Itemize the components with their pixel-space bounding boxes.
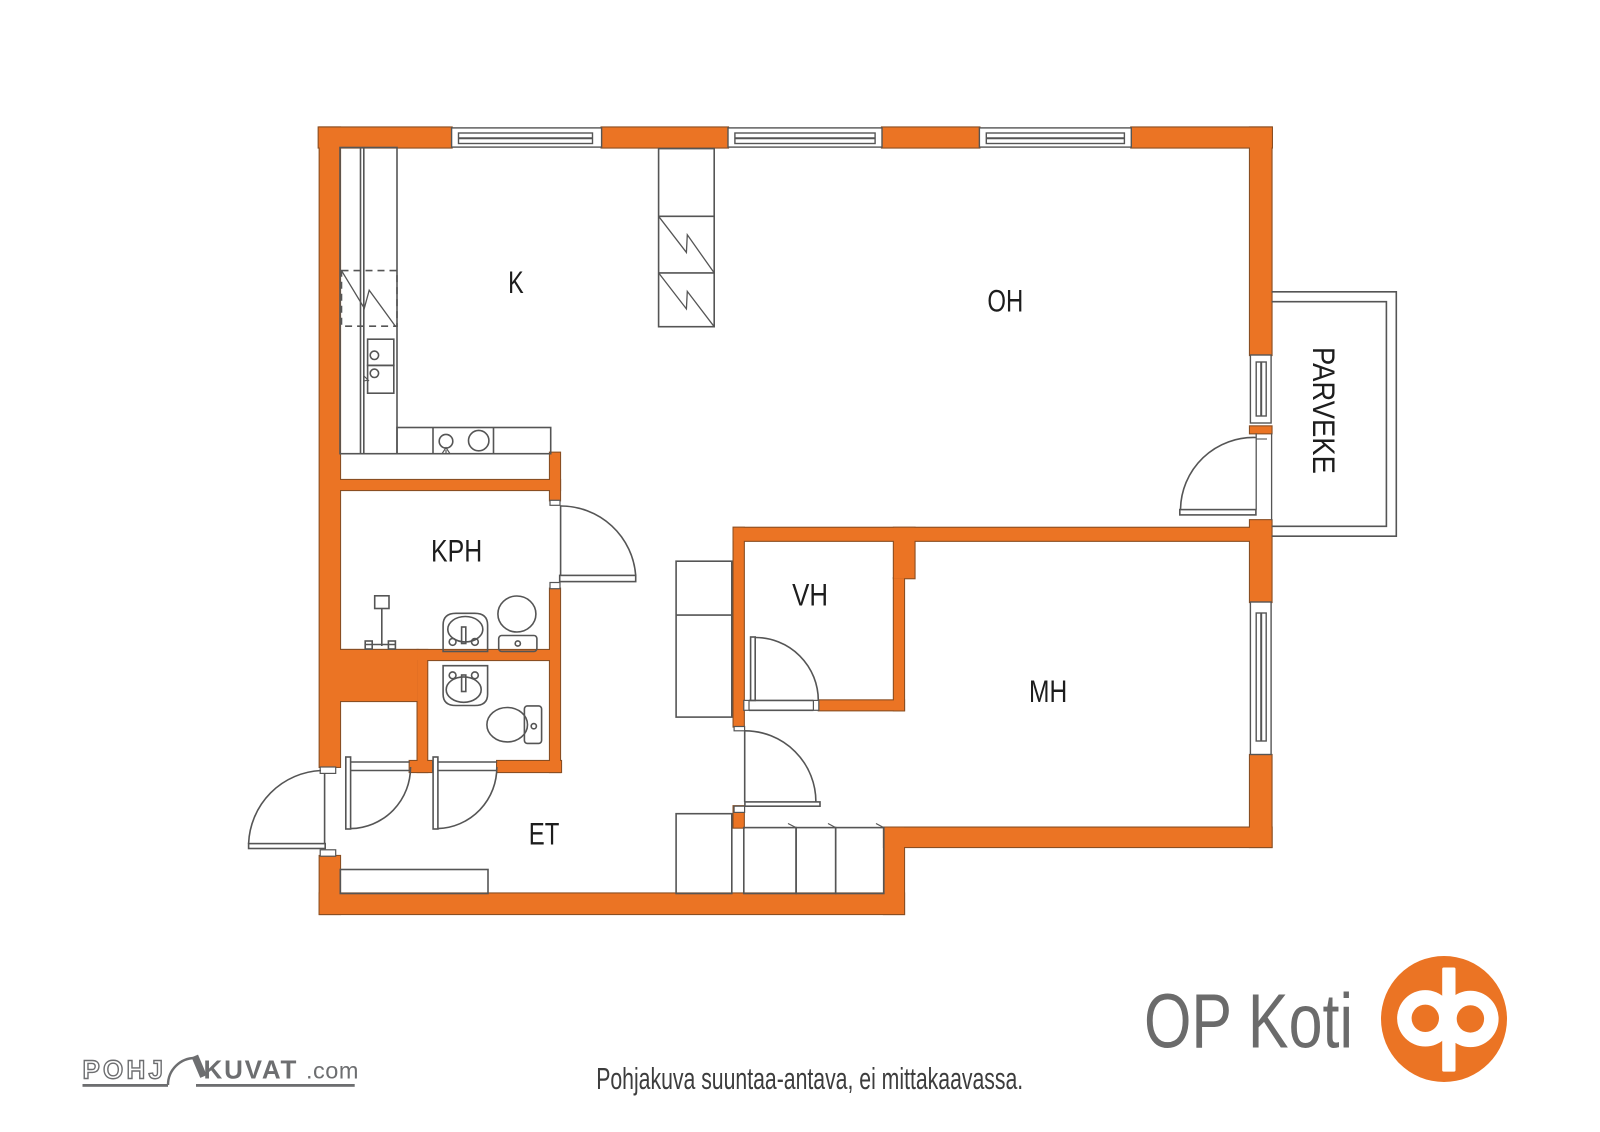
svg-text:VH: VH: [792, 578, 828, 613]
svg-text:OP Koti: OP Koti: [1144, 978, 1353, 1064]
svg-text:Pohjakuva suuntaa-antava, ei m: Pohjakuva suuntaa-antava, ei mittakaavas…: [596, 1061, 1023, 1096]
svg-text:POHJ: POHJ: [83, 1055, 167, 1085]
svg-text:ET: ET: [529, 816, 560, 851]
svg-text:OH: OH: [987, 283, 1023, 318]
svg-text:MH: MH: [1029, 673, 1067, 709]
svg-text:KPH: KPH: [431, 534, 482, 570]
svg-text:PARVEKE: PARVEKE: [1305, 347, 1340, 474]
svg-text:KUVAT: KUVAT: [204, 1055, 299, 1085]
svg-text:K: K: [508, 265, 524, 300]
svg-text:.com: .com: [306, 1058, 359, 1084]
